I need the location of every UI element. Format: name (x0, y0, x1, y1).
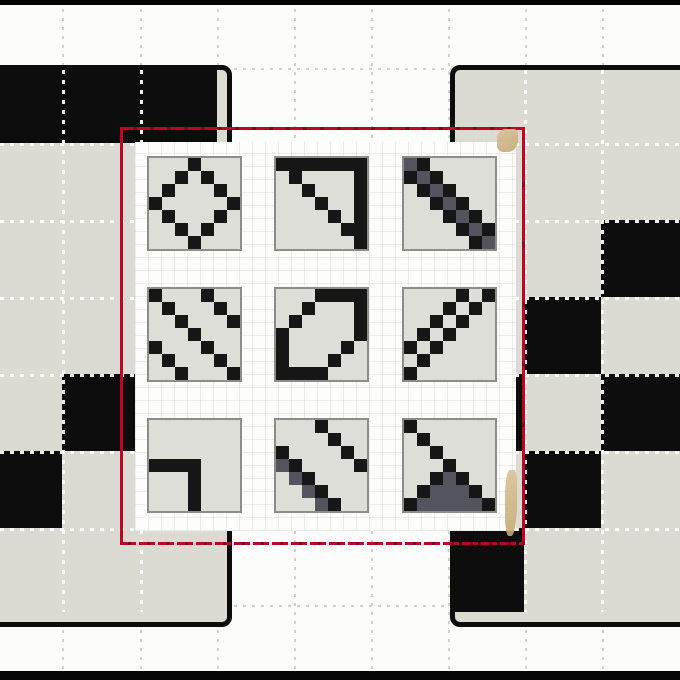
tile-cell (162, 341, 175, 354)
tile-cell (214, 289, 227, 302)
tile-cell (328, 367, 341, 380)
tile-cell (227, 459, 240, 472)
tile-cell (469, 158, 482, 171)
tile-cell (302, 197, 315, 210)
tile-cell (175, 158, 188, 171)
tile-cell (276, 171, 289, 184)
tile-cell (149, 433, 162, 446)
tile-double-diagonal-lines[interactable] (147, 287, 242, 382)
tile-cell (328, 498, 341, 511)
tile-cell (149, 171, 162, 184)
tile-cell (404, 158, 417, 171)
tile-cell (341, 236, 354, 249)
selection-marquee-right (522, 127, 525, 545)
tile-cell (482, 197, 495, 210)
tile-cell (430, 210, 443, 223)
tile-cell (456, 328, 469, 341)
tile-cell (162, 498, 175, 511)
tile-cell (201, 485, 214, 498)
tile-cell (201, 197, 214, 210)
tile-cell (201, 158, 214, 171)
tile-cell (443, 433, 456, 446)
tile-cell (430, 459, 443, 472)
board-cell (140, 70, 217, 143)
tile-cell (289, 210, 302, 223)
tile-cell (276, 341, 289, 354)
tile-cell (201, 459, 214, 472)
tile-cell (341, 197, 354, 210)
tile-cell (289, 354, 302, 367)
tile-cell (341, 498, 354, 511)
tile-cell (214, 210, 227, 223)
tile-cell (214, 223, 227, 236)
tile-cell (443, 197, 456, 210)
tile-cell (175, 420, 188, 433)
board-cell (601, 374, 680, 451)
tile-right-triangle-outline[interactable] (274, 156, 369, 251)
tile-cell (276, 459, 289, 472)
tile-cell (482, 446, 495, 459)
tile-cell (341, 354, 354, 367)
tile-cell (443, 302, 456, 315)
tile-cell (417, 459, 430, 472)
tile-cell (214, 171, 227, 184)
tile-cell (315, 184, 328, 197)
tile-cell (227, 158, 240, 171)
tile-cell (162, 171, 175, 184)
board-cell (62, 70, 140, 143)
tile-cell (469, 171, 482, 184)
tile-cell (276, 472, 289, 485)
tile-leaf-outline[interactable] (274, 287, 369, 382)
tile-cell (354, 472, 367, 485)
tile-cell (162, 223, 175, 236)
tile-cell (302, 420, 315, 433)
tile-cell (276, 433, 289, 446)
tile-cell (227, 433, 240, 446)
tile-cell (482, 210, 495, 223)
tile-cell (188, 341, 201, 354)
tile-cell (201, 210, 214, 223)
tile-cell (188, 197, 201, 210)
tile-cell (404, 184, 417, 197)
tile-cell (328, 485, 341, 498)
tile-cell (456, 341, 469, 354)
tile-cell (404, 498, 417, 511)
tile-cell (289, 433, 302, 446)
tile-cell (289, 341, 302, 354)
tile-cell (315, 197, 328, 210)
tile-cell (482, 171, 495, 184)
tile-cell (482, 302, 495, 315)
tile-cell (227, 223, 240, 236)
tile-cell (328, 433, 341, 446)
tile-cell (188, 289, 201, 302)
tile-cell (276, 197, 289, 210)
tile-cell (354, 158, 367, 171)
tile-cell (289, 420, 302, 433)
tile-cell (149, 236, 162, 249)
tile-cell (201, 236, 214, 249)
tile-cell (227, 315, 240, 328)
corner-smudge (497, 129, 518, 152)
tile-cell (276, 302, 289, 315)
tile-cell (149, 289, 162, 302)
tile-cell (354, 446, 367, 459)
tile-cell (188, 328, 201, 341)
tile-cell (175, 289, 188, 302)
corner-smudge (505, 470, 517, 536)
tile-cell (227, 367, 240, 380)
tile-cell (417, 328, 430, 341)
tile-cell (354, 367, 367, 380)
tile-cell (149, 446, 162, 459)
tile-split-diagonals[interactable] (274, 418, 369, 513)
tile-cell (149, 472, 162, 485)
tile-cell (289, 485, 302, 498)
tile-cell (289, 223, 302, 236)
tile-cell (227, 485, 240, 498)
tile-cell (201, 367, 214, 380)
tile-cell (188, 446, 201, 459)
tile-cell (430, 289, 443, 302)
tile-cell (289, 446, 302, 459)
tile-cell (404, 236, 417, 249)
tile-cell (276, 210, 289, 223)
tile-cell (417, 184, 430, 197)
tile-cell (469, 354, 482, 367)
tile-cell (289, 158, 302, 171)
tile-cell (341, 158, 354, 171)
tile-cell (443, 289, 456, 302)
tile-cell (315, 158, 328, 171)
tile-cell (201, 302, 214, 315)
tile-cell (289, 328, 302, 341)
tile-cell (341, 171, 354, 184)
tile-cell (341, 210, 354, 223)
tile-diagonal-into-triangle[interactable] (402, 418, 497, 513)
tile-cell (315, 328, 328, 341)
tile-cell (430, 223, 443, 236)
tile-cell (162, 184, 175, 197)
tile-cell (315, 171, 328, 184)
tile-cell (354, 433, 367, 446)
tile-cell (417, 367, 430, 380)
tile-cell (188, 420, 201, 433)
top-black-bar (0, 0, 680, 5)
tile-cell (341, 302, 354, 315)
tile-cell (149, 420, 162, 433)
tile-cell (162, 210, 175, 223)
tile-cell (188, 223, 201, 236)
tile-cell (430, 315, 443, 328)
tile-cell (227, 420, 240, 433)
tile-cell (443, 354, 456, 367)
tile-cell (456, 485, 469, 498)
tile-cell (201, 420, 214, 433)
tile-cell (482, 184, 495, 197)
tile-cell (175, 472, 188, 485)
tile-cell (482, 420, 495, 433)
tile-cell (417, 302, 430, 315)
tile-cell (315, 289, 328, 302)
tile-cell (456, 158, 469, 171)
board-cell (62, 374, 140, 451)
tile-cell (276, 354, 289, 367)
tile-cell (289, 171, 302, 184)
tile-cell (417, 158, 430, 171)
tile-cell (188, 354, 201, 367)
tile-cell (149, 302, 162, 315)
tile-cell (302, 472, 315, 485)
tile-cell (482, 367, 495, 380)
tile-cell (188, 315, 201, 328)
tile-cell (328, 472, 341, 485)
tile-cell (404, 341, 417, 354)
tile-cell (162, 328, 175, 341)
tile-cell (201, 184, 214, 197)
tile-cell (175, 498, 188, 511)
tile-cell (341, 289, 354, 302)
tile-cell (482, 341, 495, 354)
tile-cell (276, 446, 289, 459)
tile-cell (162, 158, 175, 171)
tile-cell (328, 315, 341, 328)
tile-cell (404, 354, 417, 367)
tile-cell (443, 485, 456, 498)
tile-cell (315, 236, 328, 249)
tile-cell (354, 354, 367, 367)
tile-cell (149, 184, 162, 197)
tile-cell (162, 472, 175, 485)
tile-cell (354, 210, 367, 223)
tile-cell (315, 210, 328, 223)
tile-cell (404, 459, 417, 472)
tile-cell (175, 485, 188, 498)
tile-cell (430, 485, 443, 498)
tile-cell (417, 420, 430, 433)
tile-cell (443, 158, 456, 171)
tile-cell (289, 184, 302, 197)
tile-cell (328, 223, 341, 236)
tile-cell (456, 184, 469, 197)
tile-cell (201, 446, 214, 459)
tile-cell (201, 171, 214, 184)
tile-cell (482, 289, 495, 302)
tile-cell (315, 367, 328, 380)
tile-cell (162, 446, 175, 459)
tile-cell (276, 420, 289, 433)
tile-cell (162, 302, 175, 315)
tile-cell (328, 210, 341, 223)
tile-cell (175, 433, 188, 446)
tile-cell (456, 354, 469, 367)
tile-cell (175, 197, 188, 210)
tile-cell (227, 236, 240, 249)
tile-cell (404, 210, 417, 223)
tile-cell (341, 328, 354, 341)
tile-cell (469, 197, 482, 210)
tile-cell (469, 328, 482, 341)
tile-cell (188, 367, 201, 380)
tile-cell (149, 459, 162, 472)
tile-cell (430, 367, 443, 380)
tile-cell (469, 341, 482, 354)
tile-cell (417, 315, 430, 328)
tile-cell (443, 498, 456, 511)
tile-cell (469, 223, 482, 236)
tile-cell (482, 223, 495, 236)
tile-cell (443, 315, 456, 328)
tile-cell (354, 184, 367, 197)
tile-cell (456, 302, 469, 315)
tile-cell (276, 289, 289, 302)
tile-cell (289, 236, 302, 249)
tile-cell (149, 197, 162, 210)
tile-cell (227, 354, 240, 367)
tile-cell (341, 341, 354, 354)
tile-cell (443, 210, 456, 223)
tile-cell (443, 367, 456, 380)
tile-cell (354, 302, 367, 315)
tile-cell (456, 171, 469, 184)
tile-cell (276, 485, 289, 498)
tile-cell (328, 341, 341, 354)
tile-cell (354, 223, 367, 236)
tile-cell (175, 210, 188, 223)
tile-diamond-outline[interactable] (147, 156, 242, 251)
tile-cell (469, 289, 482, 302)
tile-cell (430, 472, 443, 485)
tile-cell (276, 498, 289, 511)
tile-cell (404, 223, 417, 236)
tile-cell (482, 236, 495, 249)
tile-cell (227, 184, 240, 197)
tile-cell (149, 210, 162, 223)
tile-cell (227, 328, 240, 341)
tile-cell (149, 367, 162, 380)
tile-cell (443, 328, 456, 341)
tile-cell (175, 184, 188, 197)
tile-cell (149, 158, 162, 171)
tile-thick-diagonal-band[interactable] (402, 156, 497, 251)
tile-cell (162, 315, 175, 328)
tile-cell (302, 158, 315, 171)
board-cell (0, 70, 62, 143)
tile-cell (162, 367, 175, 380)
tile-cell (315, 472, 328, 485)
tile-cell (149, 354, 162, 367)
tile-cell (430, 236, 443, 249)
tile-cell (201, 341, 214, 354)
tile-cell (188, 433, 201, 446)
tile-cell (430, 420, 443, 433)
tile-cell (430, 446, 443, 459)
tile-cell (430, 498, 443, 511)
tile-cell (162, 433, 175, 446)
tile-cell (302, 302, 315, 315)
tile-cell (341, 433, 354, 446)
tile-cell (469, 446, 482, 459)
tile-cell (302, 236, 315, 249)
tile-cell (443, 171, 456, 184)
tile-cell (289, 367, 302, 380)
tile-cell (404, 289, 417, 302)
tile-cell (354, 459, 367, 472)
tile-cell (443, 472, 456, 485)
tile-cell (162, 485, 175, 498)
tile-cell (214, 158, 227, 171)
tile-cell (315, 341, 328, 354)
tile-cell (456, 236, 469, 249)
tile-cell (417, 289, 430, 302)
tile-cell (469, 498, 482, 511)
tile-cell (456, 223, 469, 236)
tile-cell (289, 197, 302, 210)
board-cell (524, 451, 601, 528)
tile-cell (443, 236, 456, 249)
tile-cell (469, 367, 482, 380)
tile-cell (328, 354, 341, 367)
tile-cell (354, 341, 367, 354)
tile-cell (214, 433, 227, 446)
board-cell (0, 451, 62, 528)
tile-cell (354, 197, 367, 210)
tile-cell (404, 485, 417, 498)
tile-cell (162, 236, 175, 249)
tile-cell (214, 197, 227, 210)
tile-cell (276, 315, 289, 328)
tile-cell (175, 171, 188, 184)
tile-cell (188, 302, 201, 315)
tile-cell (341, 420, 354, 433)
tile-cell (456, 367, 469, 380)
tile-cell (417, 341, 430, 354)
tile-cell (302, 354, 315, 367)
tile-cell (227, 171, 240, 184)
tile-cell (354, 420, 367, 433)
tile-cell (417, 236, 430, 249)
tile-cell (214, 420, 227, 433)
tile-cell (404, 446, 417, 459)
tile-cell (188, 472, 201, 485)
tile-cell (443, 420, 456, 433)
tile-cell (328, 289, 341, 302)
tile-cell (188, 171, 201, 184)
tile-cell (302, 433, 315, 446)
tile-cell (354, 171, 367, 184)
tile-checkered-anti-diagonal[interactable] (402, 287, 497, 382)
tile-cell (201, 223, 214, 236)
tile-cell (162, 459, 175, 472)
tile-corner-elbow[interactable] (147, 418, 242, 513)
tile-cell (175, 315, 188, 328)
tile-cell (289, 302, 302, 315)
tile-cell (149, 328, 162, 341)
tile-cell (175, 459, 188, 472)
tile-cell (456, 459, 469, 472)
tile-cell (302, 367, 315, 380)
tile-cell (328, 171, 341, 184)
tile-cell (328, 328, 341, 341)
tile-cell (315, 420, 328, 433)
tile-cell (430, 197, 443, 210)
tile-cell (469, 459, 482, 472)
tile-cell (175, 223, 188, 236)
tile-cell (404, 171, 417, 184)
tile-cell (302, 498, 315, 511)
tile-cell (469, 210, 482, 223)
